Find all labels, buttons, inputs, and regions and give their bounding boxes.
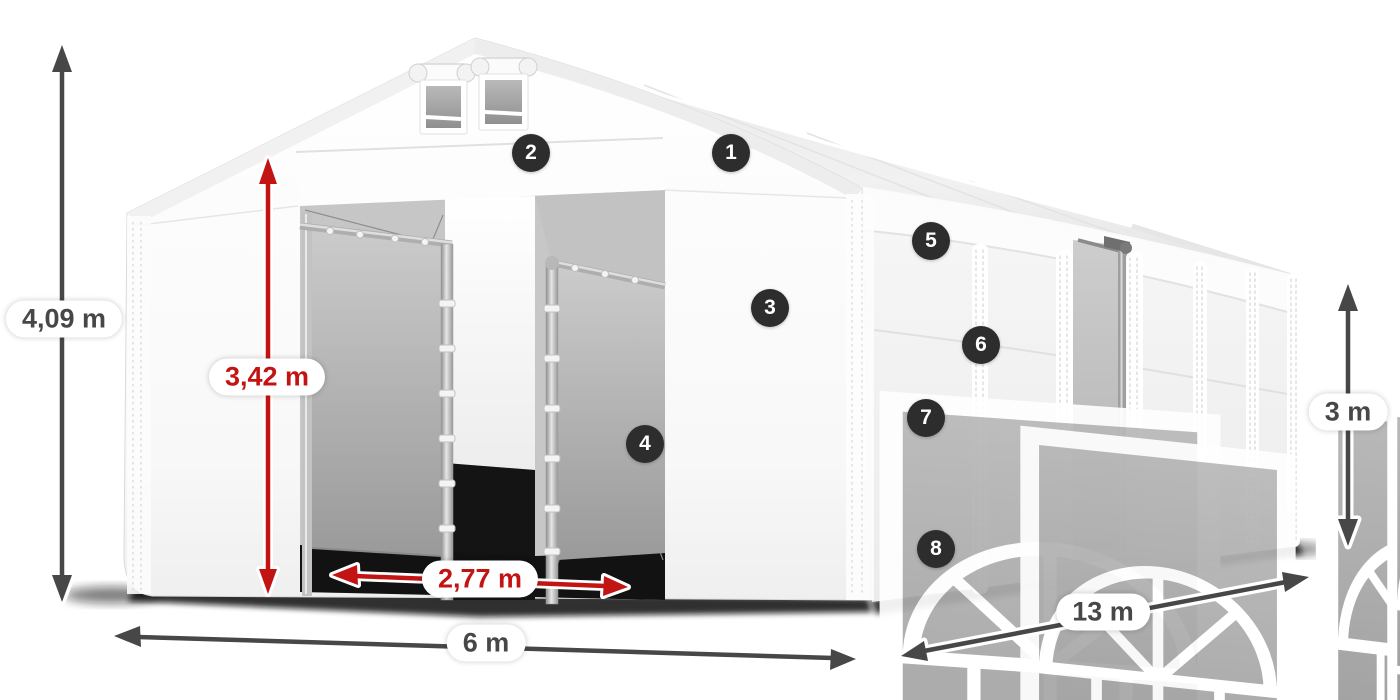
- dimension-label-length: 13 m: [1056, 593, 1150, 630]
- callout-badge-8: 8: [917, 530, 955, 568]
- tent-illustration: [0, 0, 1400, 700]
- callout-badge-7: 7: [907, 399, 945, 437]
- dimension-label-total-height: 4,09 m: [6, 300, 122, 337]
- side-windows: [1325, 405, 1400, 700]
- tent-dimension-diagram: 4,09 m 3,42 m 2,77 m 6 m 13 m 3 m 1 2 3 …: [0, 0, 1400, 700]
- dimension-label-span-width: 6 m: [447, 624, 526, 661]
- callout-badge-6: 6: [962, 326, 1000, 364]
- callout-badge-3: 3: [751, 289, 789, 327]
- dimension-label-door-height: 3,42 m: [209, 358, 325, 395]
- callout-badge-1: 1: [712, 134, 750, 172]
- vent-right: [471, 58, 537, 130]
- callout-badge-2: 2: [512, 134, 550, 172]
- callout-badge-4: 4: [626, 425, 664, 463]
- dimension-label-door-width: 2,77 m: [422, 560, 538, 597]
- callout-badge-5: 5: [912, 222, 950, 260]
- dimension-label-side-height: 3 m: [1309, 393, 1388, 430]
